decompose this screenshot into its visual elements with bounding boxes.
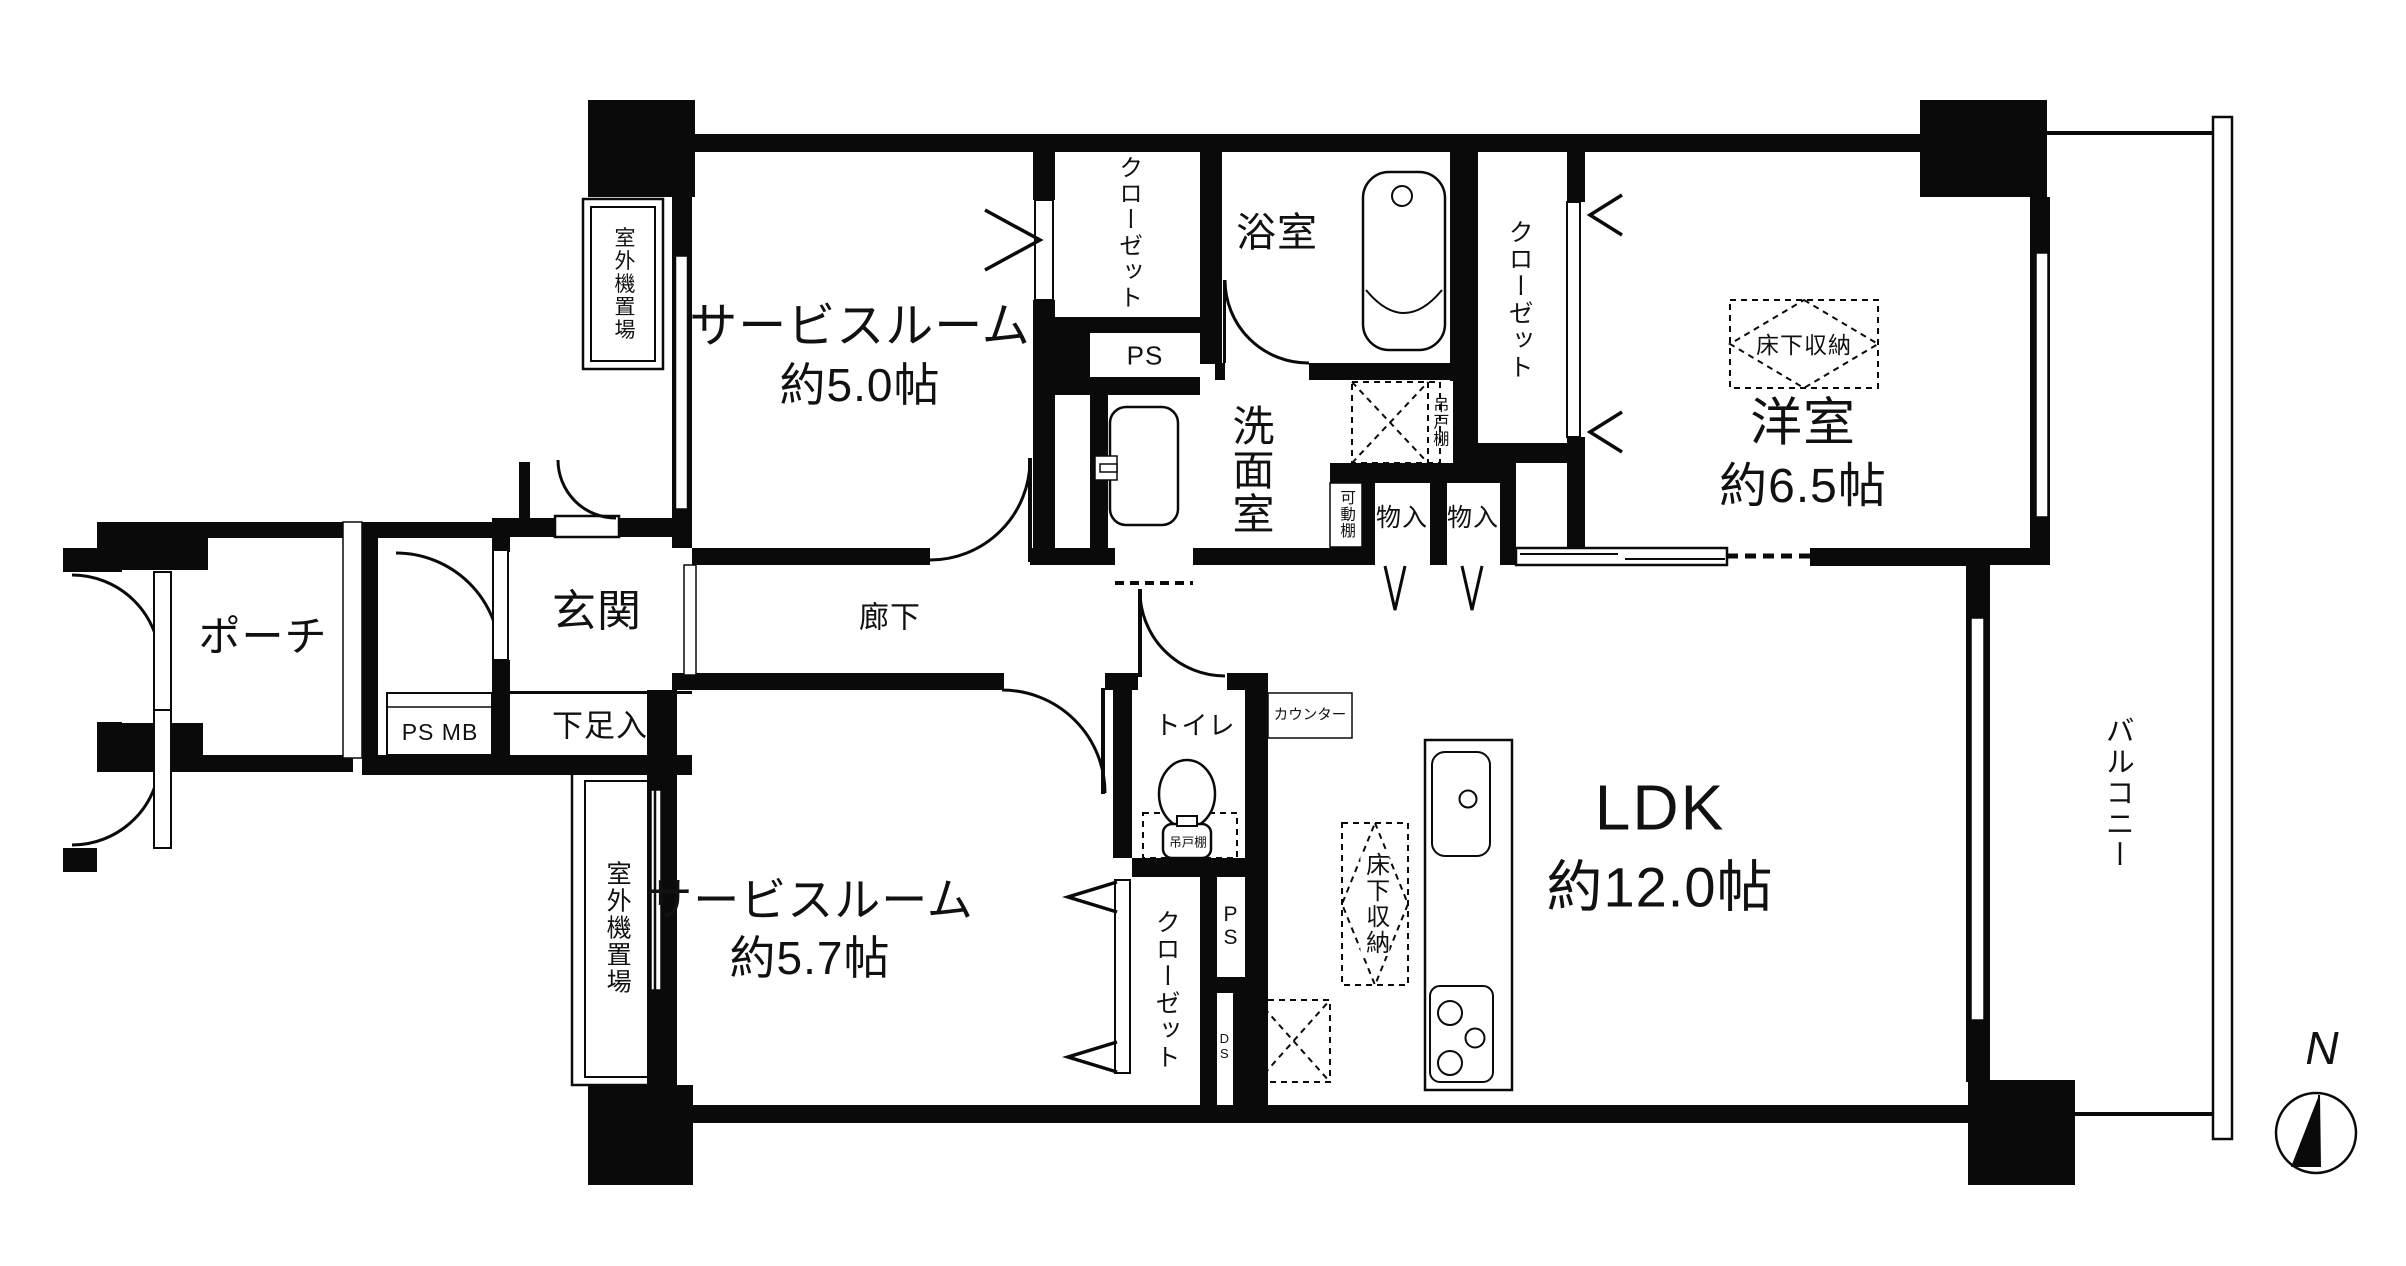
label-service-room-1-name: サービスルーム	[689, 302, 1031, 352]
label-porch: ポーチ	[198, 615, 327, 659]
label-ac-unit-north: 室外機置場	[612, 227, 634, 342]
label-balcony: バルコニー	[2102, 716, 2132, 871]
label-underfloor-west-room: 床下収納	[1754, 333, 1854, 357]
label-closet-nw: クローゼット	[1115, 155, 1140, 311]
label-ps-mb: PS MB	[402, 720, 479, 744]
label-storage-1: 物入	[1376, 505, 1428, 531]
label-ps-north: PS	[1127, 342, 1164, 369]
label-movable-shelf: 可動棚	[1338, 489, 1354, 539]
label-closet-south: クローゼット	[1153, 909, 1179, 1071]
label-entrance: 玄関	[552, 589, 642, 635]
label-ds: DS	[1217, 1031, 1231, 1061]
label-storage-2: 物入	[1447, 505, 1499, 531]
label-closet-west-room: クローゼット	[1506, 219, 1532, 381]
label-hanging-cupboard-toilet: 吊戸棚	[1167, 836, 1209, 849]
label-ldk-size: 約12.0帖	[1547, 859, 1774, 918]
label-service-room-2-size: 約5.7帖	[730, 934, 891, 982]
label-hanging-cupboard-washroom: 吊戸棚	[1430, 397, 1447, 448]
balcony-rail	[2213, 117, 2232, 1139]
label-compass-north: N	[2305, 1024, 2338, 1072]
label-ac-unit-south: 室外機置場	[604, 861, 630, 996]
structural-pillars	[588, 100, 2075, 1185]
label-hallway: 廊下	[859, 602, 921, 634]
label-shoe-cabinet: 下足入	[552, 711, 648, 744]
label-ps-south: PS	[1219, 903, 1241, 949]
label-counter: カウンター	[1274, 708, 1347, 723]
label-service-room-1-size: 約5.0帖	[780, 361, 941, 409]
label-western-room-size: 約6.5帖	[1719, 462, 1887, 512]
label-toilet: トイレ	[1154, 712, 1235, 739]
label-underfloor-kitchen: 床下収納	[1360, 852, 1389, 956]
label-washroom: 洗面室	[1228, 404, 1272, 536]
floor-plan-drawing	[0, 0, 2406, 1266]
label-western-room-name: 洋室	[1750, 397, 1856, 452]
label-ldk-name: LDK	[1595, 774, 1726, 841]
label-service-room-2-name: サービスルーム	[646, 876, 974, 924]
label-bathroom: 浴室	[1236, 212, 1318, 254]
compass-icon	[2276, 1093, 2356, 1173]
floor-plan-page: サービスルーム 約5.0帖 サービスルーム 約5.7帖 洋室 約6.5帖 LDK…	[0, 0, 2406, 1266]
